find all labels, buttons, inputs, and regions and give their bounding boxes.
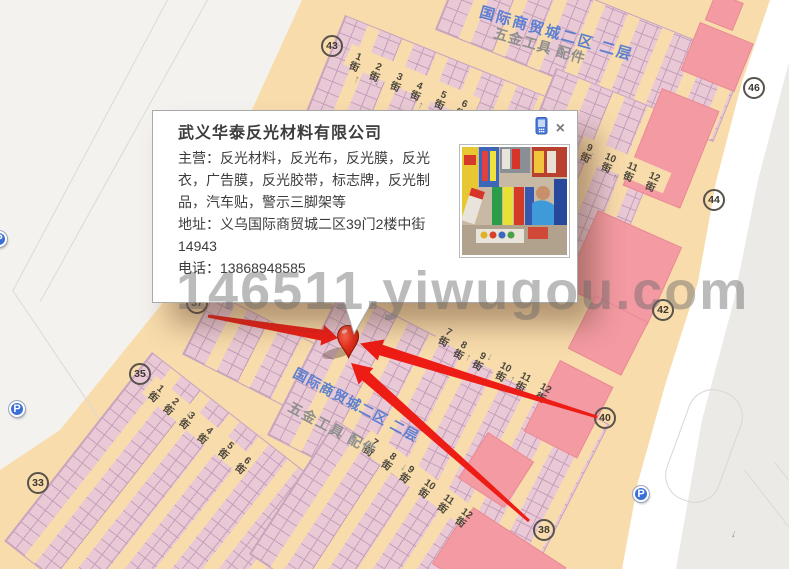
store-photo[interactable] [459,144,570,258]
gate-number-badge: 43 [321,35,343,57]
parking-icon: P [633,486,649,502]
gate-number-badge: 38 [533,519,555,541]
popup-address: 地址：义乌国际商贸城二区39门2楼中街14943 [178,213,432,257]
gate-number-badge: 40 [594,407,616,429]
street-direction-arrow-icon: ↑ [730,528,738,540]
gate-number-badge: 44 [703,189,725,211]
parking-icon: P [0,231,7,247]
close-icon[interactable]: × [556,121,565,137]
popup-title: 武义华泰反光材料有限公司 [178,119,382,143]
mobile-phone-icon[interactable] [535,117,548,140]
gate-number-badge: 33 [27,472,49,494]
watermark-text: 146511.yiwugou.com [176,260,749,322]
gate-number-badge: 35 [129,363,151,385]
parking-icon: P [9,401,25,417]
location-pin-icon[interactable] [320,322,370,367]
gate-number-badge: 46 [743,77,765,99]
map-canvas[interactable]: 1街2街3街4街5街6街9街10街11街12街7街8街9街10街11街12街1街… [0,0,789,569]
popup-business: 主营：反光材料，反光布，反光膜，反光衣，广告膜，反光胶带，标志牌，反光制品，汽车… [178,147,432,213]
